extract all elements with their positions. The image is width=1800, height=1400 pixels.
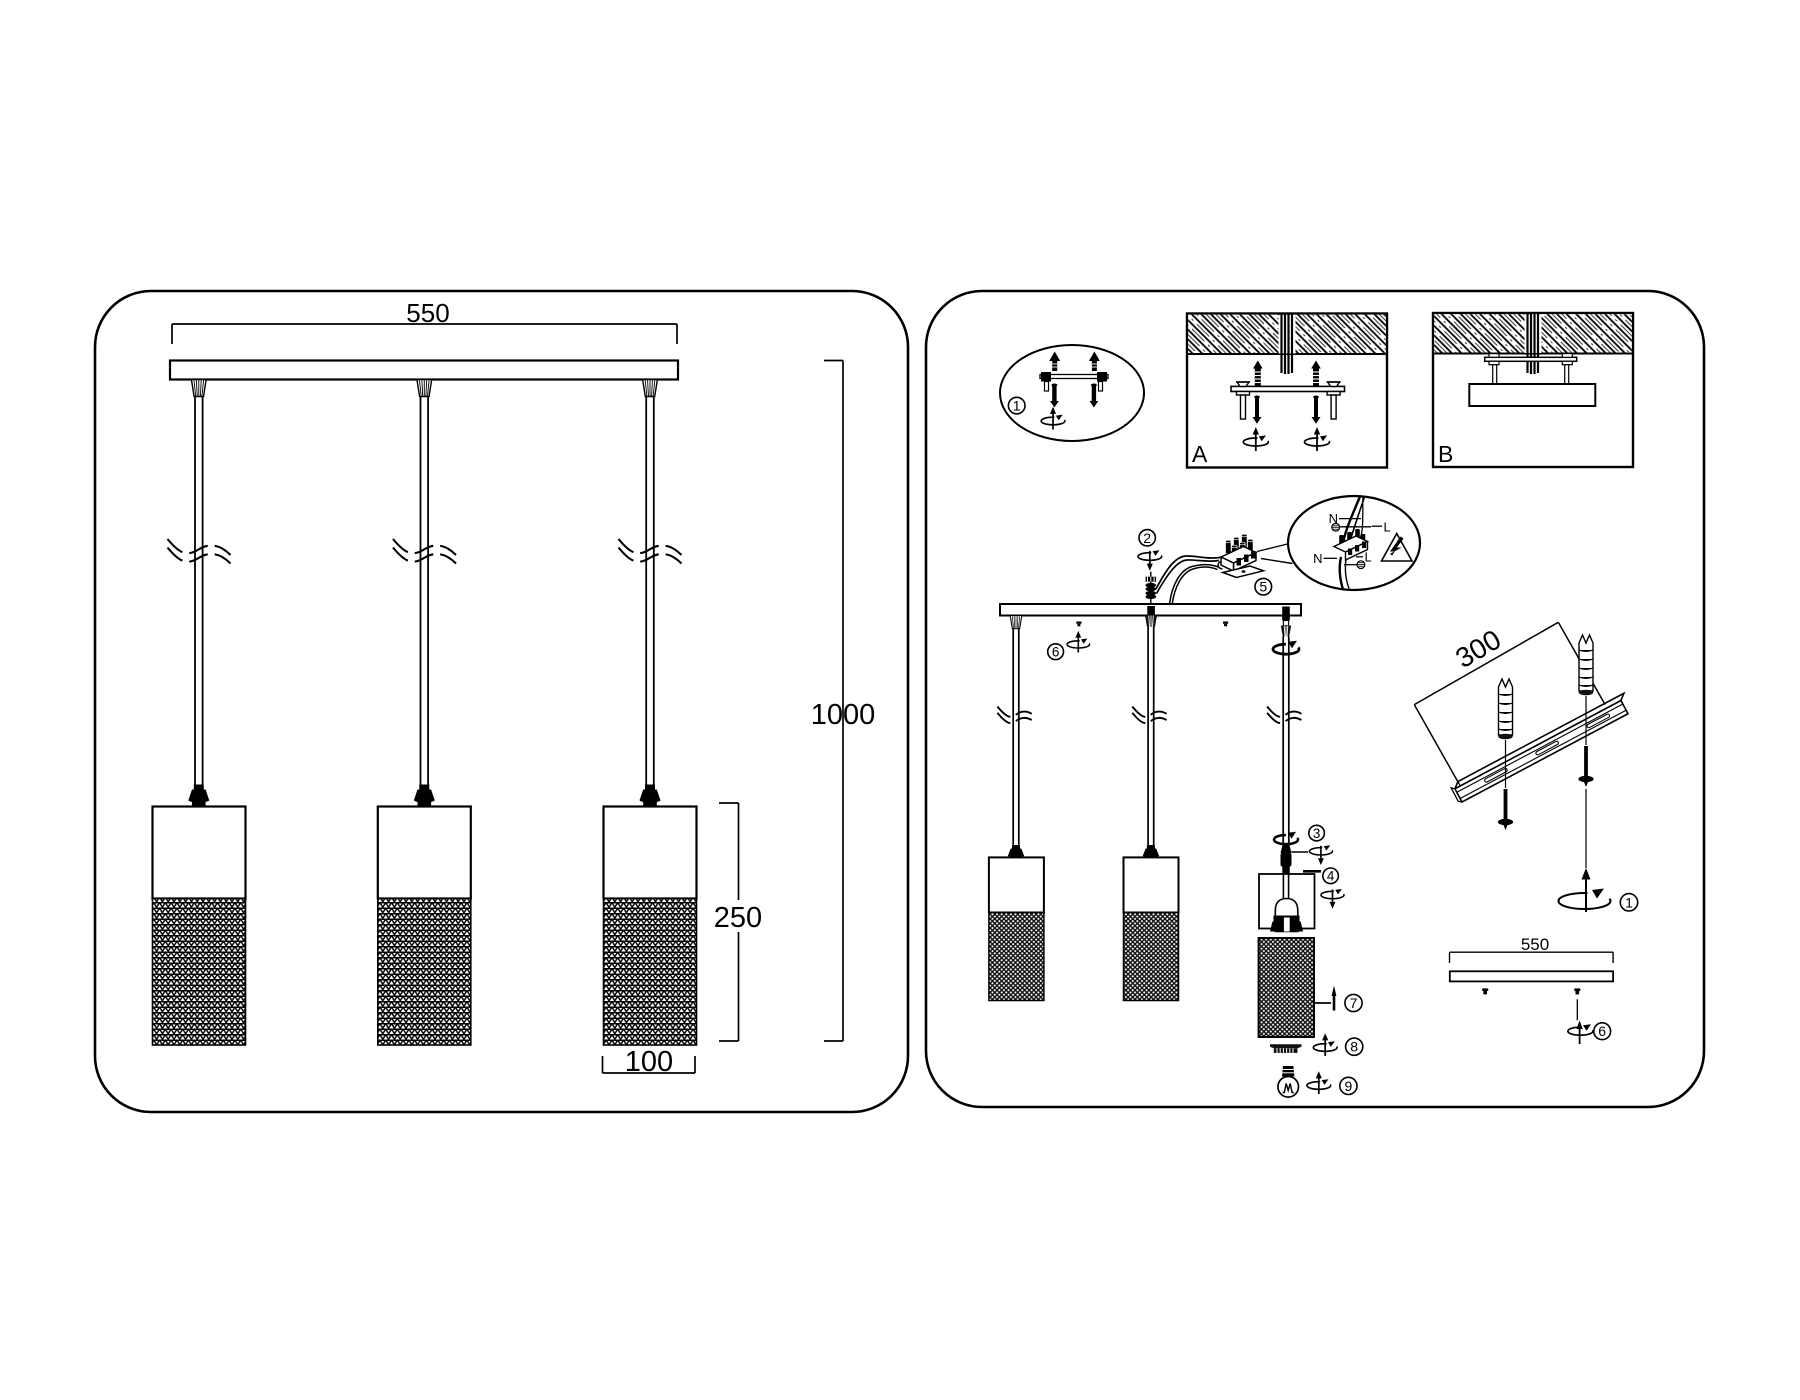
svg-text:1: 1 — [1013, 398, 1021, 414]
svg-text:100: 100 — [625, 1046, 673, 1078]
svg-text:4: 4 — [1327, 869, 1335, 884]
svg-text:1000: 1000 — [811, 699, 876, 731]
svg-text:6: 6 — [1052, 644, 1060, 659]
svg-text:B: B — [1438, 441, 1453, 467]
svg-text:8: 8 — [1350, 1039, 1358, 1055]
svg-text:3: 3 — [1313, 826, 1321, 841]
svg-text:2: 2 — [1143, 530, 1151, 546]
svg-text:7: 7 — [1350, 995, 1358, 1011]
svg-text:5: 5 — [1259, 579, 1267, 595]
svg-text:550: 550 — [1521, 935, 1549, 954]
svg-text:1: 1 — [1625, 894, 1633, 910]
svg-text:L: L — [1365, 550, 1372, 565]
svg-text:N: N — [1313, 551, 1322, 566]
svg-text:L: L — [1384, 520, 1391, 535]
svg-text:6: 6 — [1598, 1023, 1606, 1039]
svg-text:250: 250 — [714, 902, 762, 934]
svg-text:A: A — [1192, 441, 1208, 467]
svg-text:9: 9 — [1345, 1078, 1353, 1094]
